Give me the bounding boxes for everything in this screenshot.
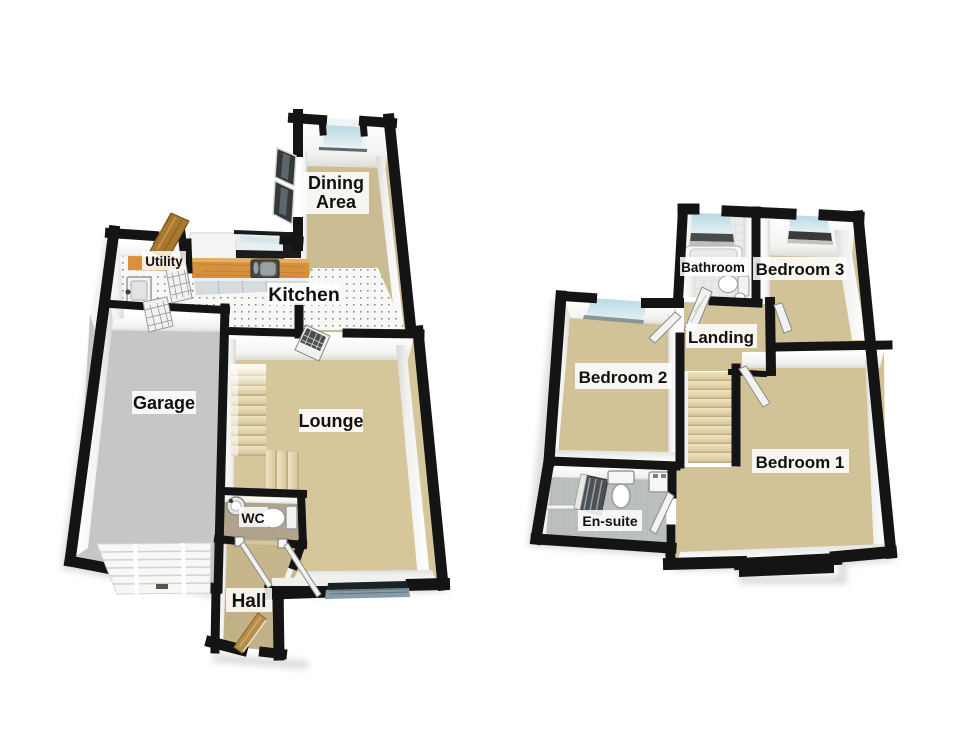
svg-text:Dining: Dining: [308, 173, 364, 193]
svg-text:WC: WC: [241, 510, 264, 526]
svg-text:Bathroom: Bathroom: [681, 260, 745, 275]
svg-text:Hall: Hall: [232, 591, 267, 612]
svg-text:Bedroom 2: Bedroom 2: [579, 368, 668, 387]
svg-text:Kitchen: Kitchen: [268, 284, 340, 306]
svg-text:Landing: Landing: [688, 328, 754, 347]
svg-text:Garage: Garage: [133, 393, 195, 413]
svg-text:Lounge: Lounge: [299, 411, 364, 431]
svg-text:Bedroom 1: Bedroom 1: [756, 453, 845, 472]
svg-text:Utility: Utility: [145, 254, 183, 269]
svg-text:En-suite: En-suite: [582, 513, 637, 529]
svg-text:Area: Area: [316, 192, 357, 212]
svg-text:Bedroom 3: Bedroom 3: [756, 260, 845, 279]
